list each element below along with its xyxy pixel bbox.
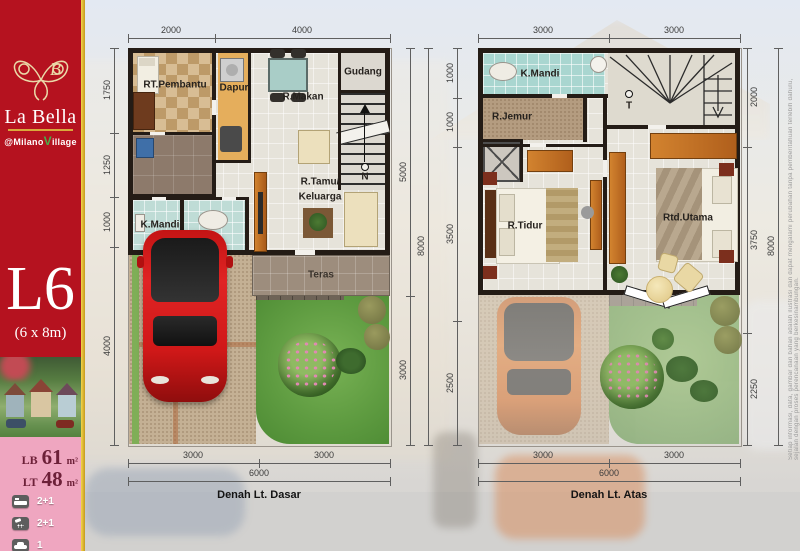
houses-photo bbox=[0, 357, 81, 437]
mini-car bbox=[6, 419, 26, 428]
red-car bbox=[143, 230, 227, 402]
bed-headboard bbox=[485, 190, 496, 258]
toilet-ground bbox=[198, 210, 228, 230]
brand-subtitle-rest: illage bbox=[52, 137, 77, 147]
dim-label: 3000 bbox=[664, 25, 684, 35]
dim-tick bbox=[774, 48, 783, 49]
nightstand bbox=[719, 163, 734, 176]
disclaimer-text: Setiap informasi, data, gambar dan bahan… bbox=[788, 60, 800, 460]
dim-label: 2000 bbox=[749, 87, 759, 107]
wall bbox=[483, 139, 523, 142]
palm-upper-1 bbox=[666, 356, 698, 382]
olive-tree-1 bbox=[358, 296, 386, 324]
maid-bed-pillow bbox=[139, 58, 155, 66]
dim-line bbox=[128, 38, 390, 39]
room-label-dapur: Dapur bbox=[220, 83, 249, 94]
mini-roof-1 bbox=[4, 383, 26, 395]
sofa bbox=[344, 192, 378, 247]
dim-tick bbox=[110, 48, 119, 49]
wall bbox=[248, 53, 251, 160]
dim-tick bbox=[743, 445, 752, 446]
desk-chair bbox=[581, 206, 594, 219]
dim-tick bbox=[110, 445, 119, 446]
bed-icon-glyph bbox=[14, 501, 27, 505]
dim-tick bbox=[478, 459, 479, 468]
dim-tick bbox=[743, 147, 752, 148]
stat-lt-value: 48 bbox=[42, 467, 63, 491]
washing-machine bbox=[136, 138, 154, 158]
car-headlight-left bbox=[151, 376, 169, 384]
wall bbox=[483, 94, 608, 98]
olive-tree-2 bbox=[364, 324, 390, 350]
dim-tick bbox=[609, 459, 610, 468]
brand-subtitle: @MilanoVillage bbox=[0, 134, 81, 148]
bed-single-pillow bbox=[499, 194, 515, 222]
stat-lt-label: LT bbox=[23, 475, 38, 489]
dim-label: 3000 bbox=[398, 360, 408, 380]
wall bbox=[583, 98, 587, 142]
wall bbox=[215, 160, 251, 163]
houseplant bbox=[309, 213, 327, 231]
background-car-blue bbox=[85, 468, 245, 536]
dim-label: 4000 bbox=[102, 336, 112, 356]
dim-label: 2000 bbox=[161, 25, 181, 35]
brochure-page: B La Bella @MilanoVillage L6 (6 x 8m) bbox=[0, 0, 800, 551]
mini-house-1 bbox=[4, 383, 26, 417]
mini-house-2 bbox=[29, 379, 53, 417]
dim-tick bbox=[128, 34, 129, 43]
dining-chair bbox=[270, 49, 285, 58]
room-label-teras: Teras bbox=[308, 270, 334, 281]
nightstand bbox=[719, 250, 734, 263]
dim-line bbox=[128, 481, 390, 482]
stove bbox=[220, 126, 242, 152]
wall bbox=[338, 48, 341, 190]
plan-title-ground: Denah Lt. Dasar bbox=[217, 489, 301, 501]
room-label-gudang: Gudang bbox=[344, 67, 382, 78]
wall bbox=[520, 142, 523, 182]
dim-tick bbox=[406, 445, 415, 446]
unit-size: (6 x 8m) bbox=[0, 325, 81, 342]
small-bush-upper bbox=[652, 328, 674, 350]
car-windshield bbox=[151, 238, 219, 302]
brand-title: La Bella bbox=[0, 106, 81, 129]
room-label-tamu-1: R.Tamu/ bbox=[301, 177, 340, 188]
orange-car-roof bbox=[504, 303, 574, 361]
dim-tick bbox=[128, 459, 129, 468]
blossom-tree bbox=[0, 357, 38, 381]
dim-label: 6000 bbox=[599, 468, 619, 478]
door-gap bbox=[150, 132, 165, 135]
car-mirror-left bbox=[137, 256, 144, 268]
mini-house-3 bbox=[56, 383, 78, 417]
stat-lb-unit: m² bbox=[67, 456, 78, 467]
door-gap bbox=[152, 197, 166, 200]
dim-tick bbox=[110, 197, 119, 198]
room-label-jemur: R.Jemur bbox=[492, 112, 532, 123]
dim-label: 5000 bbox=[398, 162, 408, 182]
olive-upper-1 bbox=[710, 296, 740, 326]
dining-chair bbox=[291, 49, 306, 58]
wardrobe-ground bbox=[133, 92, 155, 130]
kitchen-sink-bowl bbox=[226, 64, 238, 76]
dim-line bbox=[428, 48, 429, 445]
dim-label: 3000 bbox=[533, 25, 553, 35]
dim-line bbox=[478, 481, 740, 482]
dim-tick bbox=[453, 48, 462, 49]
orange-car bbox=[497, 297, 581, 435]
wall bbox=[212, 48, 216, 200]
dim-tick bbox=[740, 477, 741, 486]
flower-bush-upper-dots bbox=[606, 352, 658, 402]
bed-single-pillow bbox=[499, 228, 515, 256]
sidebar: B La Bella @MilanoVillage L6 (6 x 8m) bbox=[0, 0, 81, 551]
dim-tick bbox=[390, 34, 391, 43]
plan-title-upper: Denah Lt. Atas bbox=[571, 489, 648, 501]
mini-roof-3 bbox=[56, 383, 78, 395]
wardrobe-utama bbox=[650, 133, 737, 159]
dim-tick bbox=[478, 477, 479, 486]
mini-facade-3 bbox=[58, 395, 76, 417]
dim-label: 1000 bbox=[445, 63, 455, 83]
stairs-label: T bbox=[626, 101, 632, 112]
carport-grass-strip bbox=[132, 250, 139, 444]
north-label: N bbox=[361, 172, 368, 183]
dim-tick bbox=[390, 477, 391, 486]
dim-label: 1000 bbox=[102, 212, 112, 232]
dim-tick bbox=[453, 98, 462, 99]
dim-tick bbox=[453, 321, 462, 322]
nightstand bbox=[483, 266, 497, 279]
brand-subtitle-v: V bbox=[44, 134, 52, 148]
stats-panel: LB 61 m² LT 48 m² 2+1 bbox=[0, 437, 81, 551]
wardrobe-tidur bbox=[527, 150, 573, 172]
background-people bbox=[433, 432, 477, 528]
feature-bathrooms: 2+1 bbox=[12, 517, 54, 530]
dim-tick bbox=[743, 333, 752, 334]
dim-label: 3000 bbox=[183, 450, 203, 460]
shower-icon-drops bbox=[17, 524, 24, 528]
bed-single-blanket bbox=[546, 188, 578, 262]
feature-carport: 1 bbox=[12, 539, 43, 551]
room-label-kmandi-upper: K.Mandi bbox=[521, 69, 560, 80]
car-hood-line bbox=[153, 316, 217, 346]
dim-line bbox=[410, 48, 411, 445]
flower-bush-dots bbox=[284, 340, 336, 390]
shower-icon bbox=[12, 517, 29, 530]
stat-lb-label: LB bbox=[22, 453, 38, 467]
dim-tick bbox=[390, 459, 391, 468]
north-arrow-line bbox=[364, 112, 365, 162]
armchair bbox=[298, 130, 330, 164]
car-icon bbox=[12, 539, 29, 551]
wall bbox=[245, 197, 249, 250]
dim-label: 3000 bbox=[533, 450, 553, 460]
dim-line bbox=[457, 48, 458, 445]
dim-label: 1250 bbox=[102, 155, 112, 175]
dim-label: 3750 bbox=[749, 230, 759, 250]
room-label-kmandi-ground: K.Mandi bbox=[141, 220, 180, 231]
dim-tick bbox=[259, 459, 260, 468]
dim-label: 3500 bbox=[445, 224, 455, 244]
mini-roof-2 bbox=[29, 379, 53, 392]
car-headlight-right bbox=[201, 376, 219, 384]
dim-label: 2250 bbox=[749, 379, 759, 399]
bed-double-pillow bbox=[712, 176, 732, 204]
dim-tick bbox=[743, 48, 752, 49]
door-gap bbox=[552, 94, 567, 98]
bay-table bbox=[646, 276, 673, 303]
room-label-pembantu: RT.Pembantu bbox=[143, 80, 206, 91]
dim-label: 1000 bbox=[445, 112, 455, 132]
butterfly-logo-icon: B bbox=[6, 48, 76, 106]
bed-icon bbox=[12, 495, 29, 508]
nightstand bbox=[483, 172, 497, 185]
stat-lt: LT 48 m² bbox=[0, 467, 78, 492]
dining-table bbox=[268, 58, 308, 92]
room-label-tidur: R.Tidur bbox=[508, 221, 543, 232]
feature-bedrooms-value: 2+1 bbox=[37, 496, 54, 507]
wall bbox=[133, 132, 212, 135]
tv bbox=[258, 192, 263, 234]
gold-stripe bbox=[81, 0, 85, 551]
dim-tick bbox=[406, 48, 415, 49]
dim-tick bbox=[453, 147, 462, 148]
feature-bathrooms-value: 2+1 bbox=[37, 518, 54, 529]
door-gap bbox=[530, 144, 546, 147]
car-icon-body bbox=[14, 545, 27, 549]
dim-tick bbox=[110, 247, 119, 248]
dim-label: 2500 bbox=[445, 373, 455, 393]
dim-tick bbox=[740, 459, 741, 468]
car-mirror-right bbox=[226, 256, 233, 268]
wall bbox=[341, 90, 385, 93]
car-icon-cabin bbox=[17, 542, 24, 545]
door-gap bbox=[212, 100, 216, 115]
mini-car-2 bbox=[56, 420, 74, 428]
mini-facade-2 bbox=[31, 392, 51, 417]
dim-tick bbox=[453, 445, 462, 446]
cabinet-hall bbox=[609, 152, 626, 264]
door-gap bbox=[603, 160, 607, 177]
wall bbox=[607, 125, 735, 129]
room-label-utama: Rtd.Utama bbox=[663, 213, 713, 224]
room-label-makan: R.Makan bbox=[282, 92, 323, 103]
north-arrow-ring bbox=[361, 163, 369, 171]
orange-car-hood bbox=[507, 369, 571, 395]
door-gap bbox=[222, 197, 236, 200]
dim-label: 3000 bbox=[314, 450, 334, 460]
dim-tick bbox=[128, 477, 129, 486]
room-label-tamu-2: Keluarga bbox=[299, 192, 342, 203]
stat-lt-unit: m² bbox=[67, 478, 78, 489]
shower-icon-head bbox=[15, 518, 22, 523]
door-gap bbox=[648, 125, 666, 129]
dim-tick bbox=[215, 34, 216, 43]
feature-bedrooms: 2+1 bbox=[12, 495, 54, 508]
feature-carport-value: 1 bbox=[37, 540, 43, 551]
brand-subtitle-pre: @Milano bbox=[4, 137, 43, 147]
dim-tick bbox=[774, 445, 783, 446]
dim-label: 8000 bbox=[416, 236, 426, 256]
dim-label: 3000 bbox=[664, 450, 684, 460]
dim-tick bbox=[424, 48, 433, 49]
dim-tick bbox=[424, 445, 433, 446]
houseplant-upper bbox=[611, 266, 628, 283]
wall bbox=[603, 94, 607, 290]
stairs-start-ring bbox=[625, 90, 633, 98]
dim-label: 1750 bbox=[102, 80, 112, 100]
mini-facade-1 bbox=[6, 395, 24, 417]
dim-line bbox=[778, 48, 779, 445]
palm-bush bbox=[336, 348, 366, 374]
bed-icon-pillow bbox=[15, 498, 19, 500]
dim-tick bbox=[478, 34, 479, 43]
sink-upper bbox=[590, 56, 607, 73]
dim-tick bbox=[740, 34, 741, 43]
north-arrow-head bbox=[360, 104, 370, 113]
dim-label: 8000 bbox=[766, 236, 776, 256]
dim-tick bbox=[609, 34, 610, 43]
dim-line bbox=[747, 48, 748, 445]
dim-label: 6000 bbox=[249, 468, 269, 478]
stat-lb-value: 61 bbox=[42, 445, 63, 469]
toilet-upper bbox=[489, 62, 517, 81]
olive-upper-2 bbox=[714, 326, 742, 354]
unit-code: L6 bbox=[0, 258, 81, 320]
brand-title-rule bbox=[8, 129, 73, 131]
palm-upper-2 bbox=[690, 380, 718, 402]
dim-label: 4000 bbox=[292, 25, 312, 35]
dim-tick bbox=[110, 133, 119, 134]
svg-text:B: B bbox=[50, 59, 61, 79]
dim-tick bbox=[406, 296, 415, 297]
